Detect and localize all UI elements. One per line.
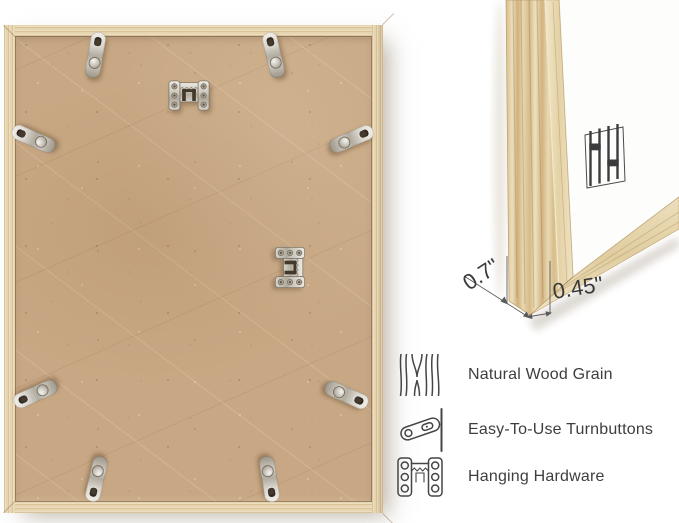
hanging-hardware (273, 246, 308, 288)
hanging-hardware (168, 78, 210, 113)
wood-grain-icon (396, 352, 444, 398)
plank-shadow (494, 0, 506, 300)
feature-label: Natural Wood Grain (468, 366, 613, 384)
hanging-hardware-plate (273, 246, 308, 288)
hanging-hardware-icon (396, 454, 444, 500)
corner-closeup: 0.7" 0.45" (420, 0, 679, 345)
frame-rail-right (372, 25, 383, 513)
product-image: 0.7" 0.45" Natural Wood Grain (0, 0, 679, 523)
miter-joint (382, 13, 394, 25)
corner-closeup-drawing: 0.7" 0.45" (420, 0, 679, 345)
frame-rail-bottom (4, 502, 383, 513)
feature-row-wood-grain: Natural Wood Grain (396, 352, 679, 398)
feature-label: Hanging Hardware (468, 468, 605, 486)
frame-rail-left (4, 25, 15, 513)
feature-label: Easy-To-Use Turnbuttons (468, 421, 653, 439)
frame-rail-top (4, 25, 383, 36)
turnbutton-icon (396, 407, 444, 453)
hanging-hardware-plate (168, 78, 210, 113)
feature-row-turnbuttons: Easy-To-Use Turnbuttons (396, 406, 679, 454)
miter-joint (382, 513, 394, 523)
frame-back-photo (4, 25, 383, 513)
feature-row-hanging-hardware: Hanging Hardware (396, 452, 679, 502)
